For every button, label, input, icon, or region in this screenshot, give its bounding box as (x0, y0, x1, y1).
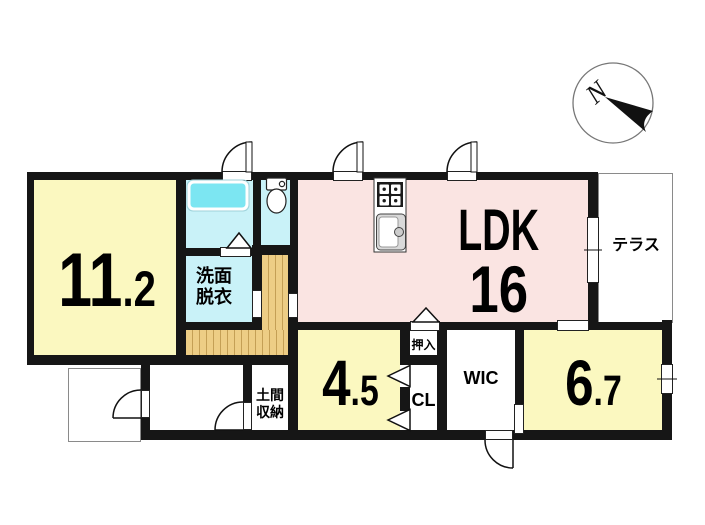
room-67-size: 6.7 (524, 351, 662, 415)
casement-window-swing (222, 142, 477, 172)
casement-window-leaf (246, 142, 477, 172)
front-door-swing (113, 390, 141, 418)
washroom-label: 洗面 脱衣 (181, 266, 247, 308)
floor-plan: N 11.2 LDK 16 4.5 6.7 テラス 洗面 脱衣 土間 収納 押入… (0, 0, 705, 525)
kitchen-sink (377, 214, 406, 250)
room-ldk-label: LDK 16 (426, 202, 572, 322)
room-bedroom-west-size: 11.2 (36, 243, 178, 319)
kitchen-stove (377, 182, 403, 207)
room-45-size: 4.5 (288, 351, 412, 415)
bathtub (187, 180, 249, 211)
oshiire-label: 押入 (409, 339, 438, 351)
doma-storage-label: 土間 収納 (251, 387, 289, 420)
toilet (267, 178, 287, 213)
wic-label: WIC (447, 369, 515, 387)
back-door-swing (485, 440, 513, 468)
closet-label: CL (409, 391, 438, 409)
terrace-label: テラス (598, 238, 674, 254)
doma-door-swing (215, 402, 243, 430)
kitchen-counter (374, 178, 406, 252)
compass: N (573, 63, 653, 143)
